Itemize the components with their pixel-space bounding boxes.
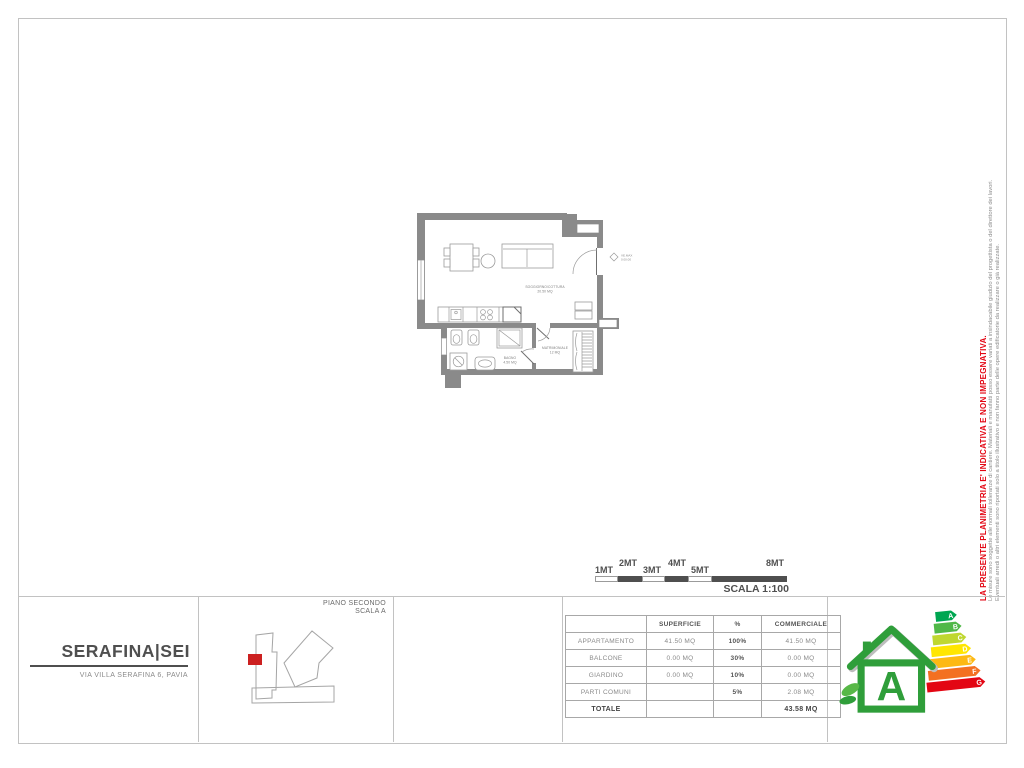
- energy-rating-letter: A: [877, 663, 907, 709]
- bedroom-label: MATRIMONIALE: [542, 346, 569, 350]
- project-address: VIA VILLA SERAFINA 6, PAVIA: [18, 672, 188, 679]
- row-superficie: [647, 684, 714, 701]
- washing-machine: [450, 353, 467, 370]
- energy-house-icon: A: [839, 629, 934, 709]
- scale-label-1mt: 1MT: [595, 565, 613, 575]
- unit-location-marker: [248, 654, 262, 665]
- row-superficie: 41.50 MQ: [647, 633, 714, 650]
- floor-plan-drawing: SOGGIORNO/COTTURA 20.50 MQ MATRIMONIALE …: [405, 203, 645, 398]
- scale-caption: SCALA 1:100: [723, 583, 789, 595]
- title-rule: [30, 665, 188, 667]
- strip-divider-2: [393, 596, 394, 742]
- bedroom-door: [537, 328, 550, 341]
- keyplan-drawing: [200, 597, 390, 740]
- marker-line2: 0.00.00: [621, 258, 631, 262]
- bedroom-area: 12 MQ: [550, 351, 561, 355]
- bar-letter-a: A: [948, 612, 954, 620]
- strip-divider-3: [562, 596, 563, 742]
- scale-seg-5: [688, 576, 712, 582]
- scale-seg-1: [595, 576, 618, 582]
- table-row: GIARDINO 0.00 MQ 10% 0.00 MQ: [566, 667, 841, 684]
- floorplan-sheet: { "disclaimer": { "headline": "LA PRESEN…: [0, 0, 1024, 768]
- bathroom-sink: [475, 357, 495, 370]
- bar-letter-b: B: [952, 623, 958, 631]
- row-label: BALCONE: [566, 650, 647, 667]
- kitchen-counter: [438, 307, 521, 322]
- disclaimer-note2: Eventuali arredi o altri elementi sono r…: [995, 85, 1002, 601]
- bar-letter-d: D: [962, 645, 968, 653]
- row-percent: 5%: [714, 684, 762, 701]
- row-label: GIARDINO: [566, 667, 647, 684]
- header-empty: [566, 616, 647, 633]
- row-label: APPARTAMENTO: [566, 633, 647, 650]
- header-percent: %: [714, 616, 762, 633]
- energy-bar-a: [935, 610, 957, 622]
- sofa: [502, 244, 553, 268]
- scale-seg-4: [665, 576, 688, 582]
- table-row: BALCONE 0.00 MQ 30% 0.00 MQ: [566, 650, 841, 667]
- row-superficie: 0.00 MQ: [647, 667, 714, 684]
- bathroom-label: BAGNO: [504, 356, 517, 360]
- entrance-door: [573, 248, 597, 275]
- living-room-area: 20.50 MQ: [537, 290, 553, 294]
- row-label: PARTI COMUNI: [566, 684, 647, 701]
- toilet: [451, 330, 462, 345]
- row-percent: 10%: [714, 667, 762, 684]
- row-percent: 100%: [714, 633, 762, 650]
- total-percent: [714, 701, 762, 718]
- table-row: PARTI COMUNI 5% 2.08 MQ: [566, 684, 841, 701]
- bidet: [468, 330, 479, 345]
- table-total-row: TOTALE 43.58 MQ: [566, 701, 841, 718]
- row-commerciale: 2.08 MQ: [762, 684, 841, 701]
- row-superficie: 0.00 MQ: [647, 650, 714, 667]
- scale-seg-8: [712, 576, 787, 582]
- header-superficie: SUPERFICIE: [647, 616, 714, 633]
- elevation-marker-icon: VE.MAX 0.00.00: [610, 253, 632, 262]
- surface-table: SUPERFICIE % COMMERCIALE APPARTAMENTO 41…: [565, 615, 841, 718]
- scale-label-8mt: 8MT: [766, 558, 784, 568]
- strip-divider-1: [198, 596, 199, 742]
- row-commerciale: 0.00 MQ: [762, 650, 841, 667]
- row-commerciale: 41.50 MQ: [762, 633, 841, 650]
- disclaimer-note: LA PRESENTE PLANIMETRIA E' INDICATIVA E …: [979, 85, 1001, 601]
- bathroom-door: [521, 349, 534, 364]
- row-percent: 30%: [714, 650, 762, 667]
- scale-label-2mt: 2MT: [619, 558, 637, 568]
- row-commerciale: 0.00 MQ: [762, 667, 841, 684]
- wardrobe: [575, 302, 592, 319]
- header-commerciale: COMMERCIALE: [762, 616, 841, 633]
- scale-label-3mt: 3MT: [643, 565, 661, 575]
- scale-seg-3: [642, 576, 665, 582]
- table-header-row: SUPERFICIE % COMMERCIALE: [566, 616, 841, 633]
- disclaimer-headline: LA PRESENTE PLANIMETRIA E' INDICATIVA E …: [979, 85, 988, 601]
- scale-seg-2: [618, 576, 642, 582]
- scale-bar: 1MT 2MT 3MT 4MT 5MT 8MT SCALA 1:100: [595, 556, 805, 598]
- total-commerciale: 43.58 MQ: [762, 701, 841, 718]
- scale-label-5mt: 5MT: [691, 565, 709, 575]
- side-table: [481, 254, 495, 268]
- shower: [497, 328, 522, 348]
- scale-label-4mt: 4MT: [668, 558, 686, 568]
- project-title: SERAFINA|SEI: [18, 641, 190, 662]
- bar-letter-c: C: [957, 634, 963, 642]
- bathroom-area: 4.50 MQ: [503, 361, 517, 365]
- energy-bars: A B C D E F G: [919, 608, 986, 693]
- dining-table: [444, 244, 479, 271]
- disclaimer-note1: Le misure sono soggette alle normali tol…: [988, 85, 995, 601]
- bed: [573, 331, 593, 372]
- energy-rating-label: A B C D E F G A: [838, 602, 998, 738]
- total-superficie: [647, 701, 714, 718]
- table-row: APPARTAMENTO 41.50 MQ 100% 41.50 MQ: [566, 633, 841, 650]
- total-label: TOTALE: [566, 701, 647, 718]
- strip-divider-top: [18, 596, 1005, 597]
- living-room-label: SOGGIORNO/COTTURA: [525, 285, 565, 289]
